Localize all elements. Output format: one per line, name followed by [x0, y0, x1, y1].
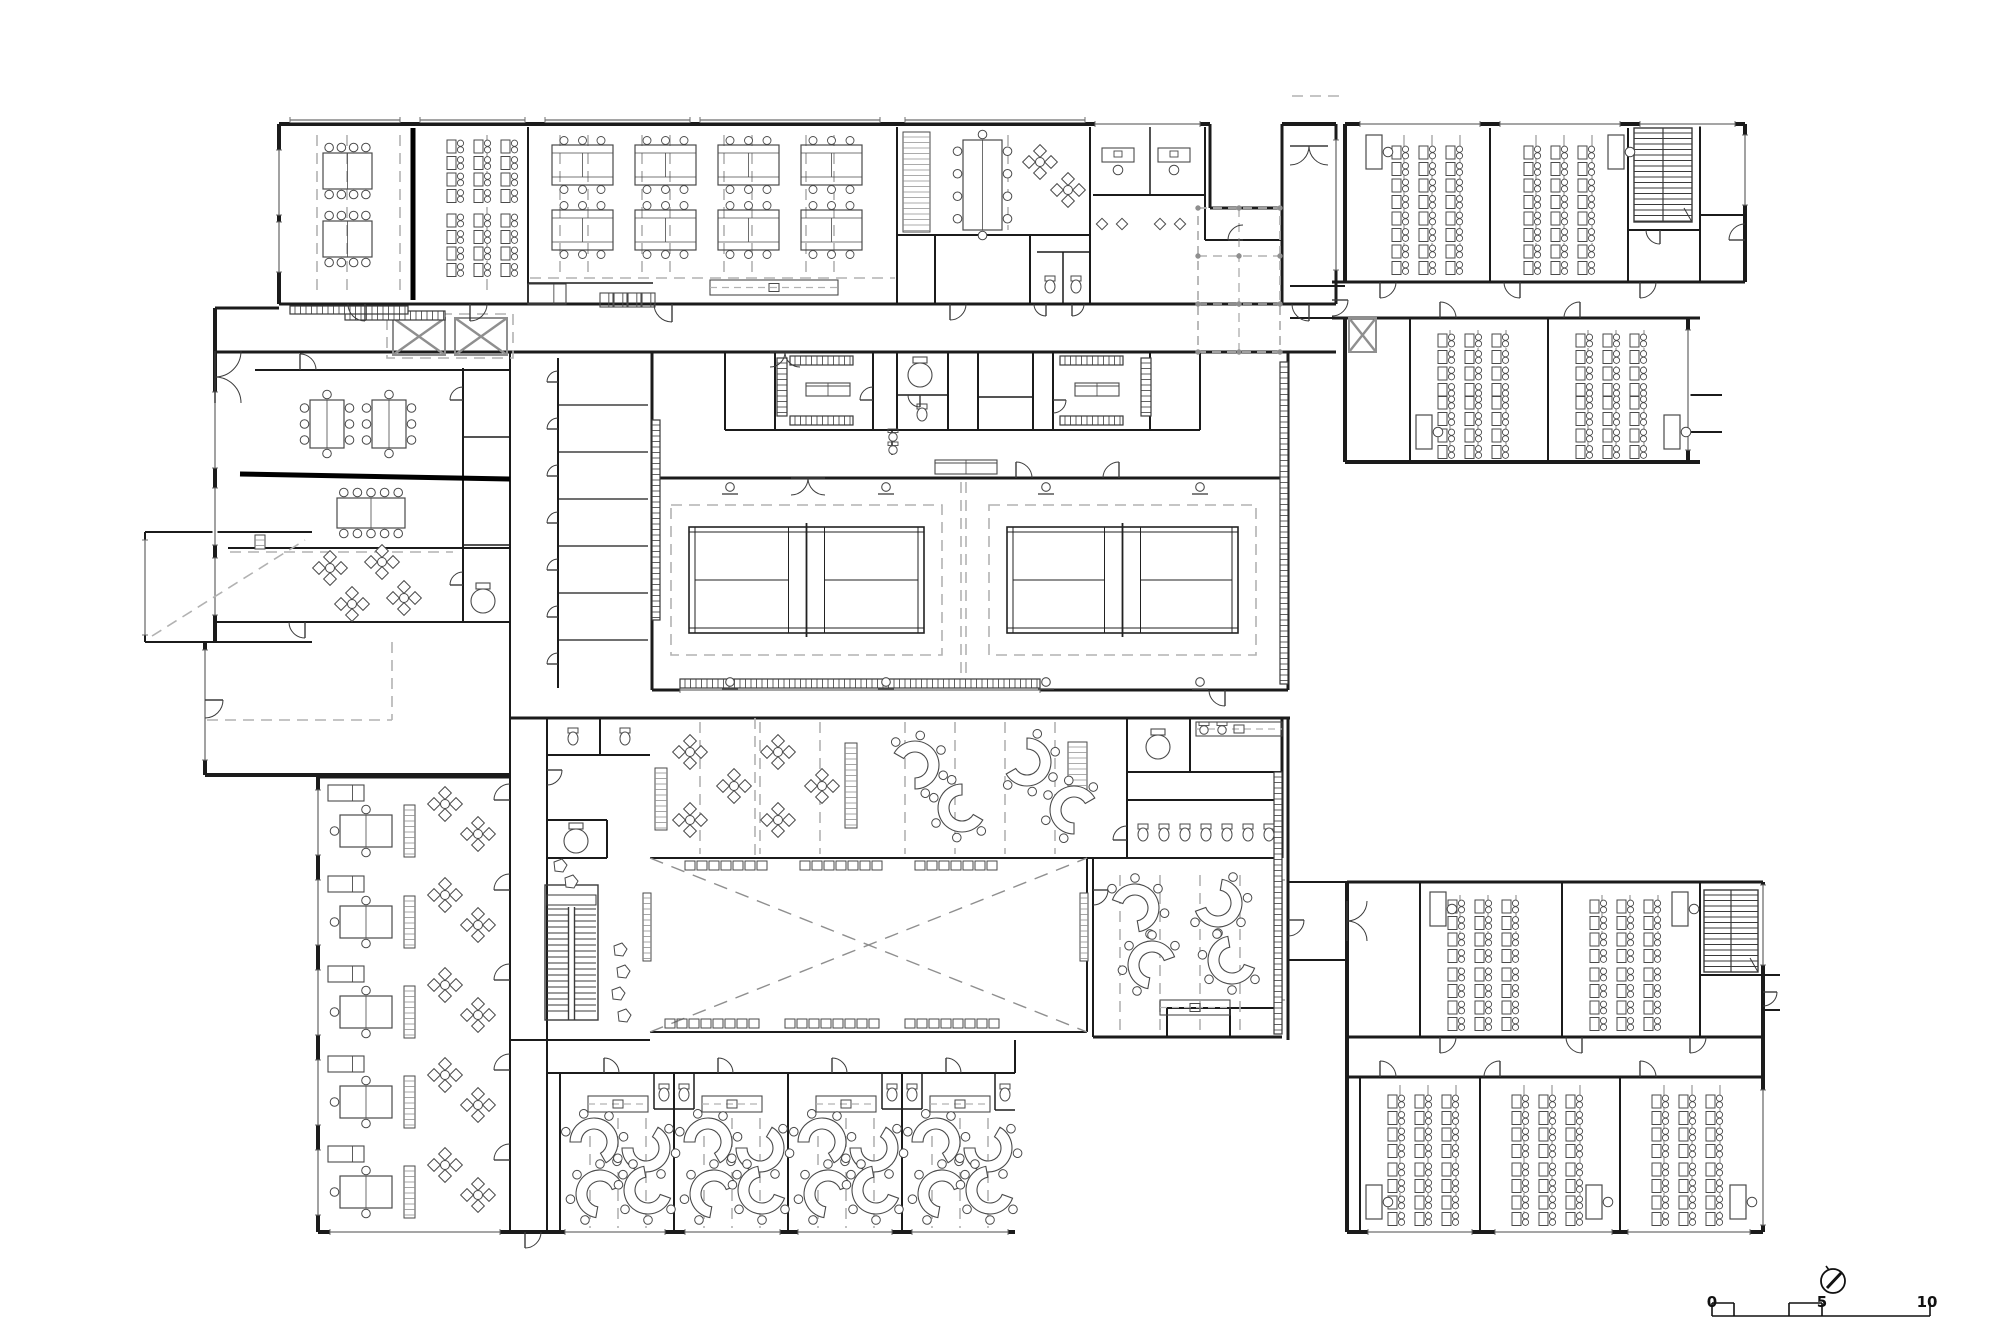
doors-3	[950, 304, 966, 320]
elevator-shafts-0	[393, 318, 445, 355]
elevator-shafts-2	[1349, 318, 1376, 352]
windows-14	[1368, 1229, 1472, 1235]
net-posts-2	[1038, 483, 1054, 494]
classroom-desk-grids-8	[1576, 334, 1647, 397]
four-seat-tables-3	[365, 545, 400, 580]
meeting-tables-9	[330, 1076, 392, 1128]
office-desks-0	[1102, 148, 1134, 175]
toilets-0	[1045, 276, 1055, 293]
meeting-tables-10	[330, 1166, 392, 1218]
four-seat-tables-8	[673, 803, 708, 838]
windows-21	[212, 558, 218, 615]
floor-plan-canvas	[0, 0, 2000, 1338]
teacher-desks-1	[1608, 135, 1635, 169]
classroom-desk-grids-3	[1392, 212, 1463, 275]
architectural-floor-plan: 0 5 10	[0, 0, 2000, 1338]
meeting-tables-5	[953, 130, 1012, 240]
cabinets-3	[328, 1056, 364, 1072]
doors-11	[494, 1144, 510, 1160]
scalebar-label-10: 10	[1917, 1293, 1938, 1311]
doors-18	[1103, 462, 1119, 478]
locker-strips-8	[1141, 358, 1151, 416]
toilets-10	[1243, 824, 1253, 841]
doors-48	[547, 371, 558, 382]
teacher-desks-4	[1430, 892, 1457, 926]
four-seat-tables-2	[313, 551, 348, 586]
toilets-7	[1180, 824, 1190, 841]
guest-chairs-0	[1096, 218, 1107, 229]
windows-2	[545, 117, 690, 123]
windows-13	[330, 1229, 500, 1235]
counters-3	[816, 1096, 876, 1112]
stepping-stones	[554, 859, 631, 1022]
doors-4	[1228, 225, 1243, 240]
teacher-desks-8	[1730, 1185, 1757, 1219]
classroom-desk-grids-16	[1512, 1095, 1583, 1158]
meeting-tables-8	[330, 986, 392, 1038]
toilets-11	[1264, 824, 1274, 841]
doors-31	[1564, 302, 1580, 318]
doors-13	[604, 1058, 619, 1073]
windows-12	[912, 1229, 1008, 1235]
four-seat-tables-13	[461, 817, 496, 852]
scissor-stair-0	[545, 885, 598, 1020]
counters	[588, 280, 1282, 1112]
doors-54	[547, 653, 558, 664]
windows-1	[420, 117, 525, 123]
toilets-13	[679, 1084, 689, 1101]
doors-7	[494, 784, 510, 800]
windows	[142, 117, 1766, 1235]
accessible-toilets-0	[908, 357, 932, 387]
benches-2	[935, 460, 997, 474]
scalebar-label-0: 0	[1707, 1293, 1717, 1311]
windows-11	[798, 1229, 892, 1235]
classroom-desk-grids-14	[1388, 1095, 1459, 1158]
double-doors-1	[1290, 146, 1328, 165]
doors-17	[1016, 462, 1032, 478]
four-seat-tables-6	[673, 735, 708, 770]
doors-50	[547, 465, 558, 476]
lab-benches-2	[718, 137, 779, 194]
locker-strips-1	[1280, 362, 1288, 684]
sports-courts-1	[1007, 523, 1238, 637]
accessible-toilets-3	[471, 583, 495, 613]
walls-horizontal	[145, 124, 1780, 1232]
doors-52	[547, 559, 558, 570]
curved-desk-clusters-23	[942, 1156, 1021, 1238]
curved-desk-clusters-19	[828, 1156, 907, 1238]
teacher-desks-7	[1586, 1185, 1613, 1219]
four-seat-tables-5	[387, 581, 422, 616]
guest-chairs-2	[1154, 218, 1165, 229]
lab-benches-5	[635, 202, 696, 259]
doors-45	[205, 700, 223, 718]
windows-20	[212, 488, 218, 545]
doors-42	[289, 622, 305, 638]
sinks-3	[1217, 722, 1227, 734]
guest-chairs-3	[1174, 218, 1185, 229]
four-seat-tables-11	[761, 803, 796, 838]
stepping-stones-0	[614, 943, 627, 956]
classroom-desk-grids-4	[1524, 146, 1595, 209]
four-seat-tables-10	[805, 769, 840, 804]
windows-23	[142, 540, 148, 635]
seat-rows-4	[785, 1019, 879, 1028]
stepping-stones-2	[612, 987, 625, 1000]
heavy-walls-1	[240, 474, 510, 479]
benches	[806, 383, 1119, 474]
doors-49	[547, 418, 558, 429]
four-seat-tables-14	[428, 878, 463, 913]
windows-16	[1628, 1229, 1750, 1235]
windows-30	[1742, 135, 1748, 205]
doors-21	[1113, 826, 1127, 840]
toilets-15	[907, 1084, 917, 1101]
doors-29	[1640, 282, 1656, 298]
teacher-desks-5	[1672, 892, 1699, 926]
four-seat-tables-0	[1023, 145, 1058, 180]
seat-rows-5	[905, 1019, 999, 1028]
doors-22	[860, 387, 873, 400]
curved-desk-clusters-11	[600, 1156, 679, 1238]
lab-benches-7	[801, 202, 862, 259]
doors-37	[1380, 1061, 1396, 1077]
windows-33	[1760, 1090, 1766, 1225]
four-seat-tables-18	[428, 1058, 463, 1093]
classroom-desk-grids-5	[1524, 212, 1595, 275]
four-seat-tables-20	[428, 1148, 463, 1183]
meeting-tables-2	[300, 390, 354, 458]
windows-26	[315, 970, 321, 1035]
cabinets-2	[328, 966, 364, 982]
double-doors-3	[1347, 901, 1367, 941]
classroom-desk-grids-1	[447, 214, 518, 277]
classroom-desk-grids-6	[1438, 334, 1509, 397]
doors-20	[1093, 890, 1108, 905]
classroom-desk-grids-0	[447, 140, 518, 203]
four-seat-tables-9	[761, 735, 796, 770]
teacher-desks	[1366, 135, 1757, 1219]
net-posts-7	[1192, 678, 1208, 689]
elevator-shafts-1	[455, 318, 507, 355]
shelving-0	[903, 132, 930, 232]
four-seat-tables-7	[717, 769, 752, 804]
windows-28	[315, 1150, 321, 1215]
doors-15	[832, 1058, 847, 1073]
stepping-stones-4	[554, 859, 567, 872]
windows-32	[1760, 885, 1766, 965]
locker-strips-2	[652, 420, 660, 620]
net-posts-1	[878, 483, 894, 494]
windows-8	[1640, 121, 1735, 127]
toilets-16	[1000, 1084, 1010, 1101]
curved-desk-clusters-7	[1184, 926, 1263, 1008]
doors-46	[1288, 920, 1304, 936]
net-posts-3	[1192, 483, 1208, 494]
seat-rows-2	[915, 861, 997, 870]
shelving-5	[404, 1166, 415, 1218]
accessible-toilets-2	[1146, 729, 1170, 759]
windows-15	[1495, 1229, 1612, 1235]
lab-benches-3	[801, 137, 862, 194]
four-seat-tables-17	[461, 998, 496, 1033]
doors-9	[494, 964, 510, 980]
cabinets-0	[328, 785, 364, 801]
classroom-desk-grids-12	[1590, 900, 1661, 963]
doors-30	[1440, 302, 1456, 318]
classroom-desk-grids-13	[1590, 968, 1661, 1031]
lab-benches-4	[552, 202, 613, 259]
windows-6	[1360, 121, 1480, 127]
classroom-desk-grids-19	[1652, 1163, 1723, 1226]
doors-38	[1484, 1061, 1500, 1077]
meeting-tables	[300, 130, 1012, 1218]
counters-1	[588, 1096, 648, 1112]
windows-25	[315, 880, 321, 945]
meeting-tables-1	[323, 211, 372, 267]
windows-3	[700, 117, 880, 123]
doors-51	[547, 512, 558, 523]
doors-36	[1690, 1037, 1706, 1053]
lab-benches	[552, 137, 862, 259]
guest-chairs	[1096, 218, 1185, 229]
windows-27	[315, 1060, 321, 1125]
staircases-0	[1634, 128, 1692, 222]
void-hall-x-mark	[650, 858, 1087, 1032]
windows-19	[212, 392, 218, 468]
four-seat-tables-4	[335, 587, 370, 622]
sinks-2	[1199, 722, 1209, 734]
seat-rows-0	[685, 861, 767, 870]
counters-2	[702, 1096, 762, 1112]
locker-strips-0	[1274, 772, 1282, 1034]
scissor-stair	[545, 885, 598, 1020]
toilets-5	[1138, 824, 1148, 841]
entrance-canopy-grid-0	[1196, 206, 1282, 354]
doors-32	[1729, 224, 1745, 240]
counters-4	[930, 1096, 990, 1112]
seat-rows-1	[800, 861, 882, 870]
teacher-desks-2	[1416, 415, 1443, 449]
double-doors-0	[215, 351, 241, 403]
double-doors-2	[791, 478, 825, 495]
sports-courts-0	[689, 523, 924, 637]
locker-strips-6	[1060, 356, 1123, 365]
classroom-desk-grids-18	[1652, 1095, 1723, 1158]
doors	[205, 224, 1777, 1248]
cabinets-1	[328, 876, 364, 892]
shelving-6	[655, 768, 667, 830]
meeting-tables-4	[337, 488, 405, 538]
shelving-7	[845, 743, 857, 828]
windows-29	[1333, 140, 1339, 270]
windows-7	[1500, 121, 1620, 127]
staircases-1	[1704, 890, 1758, 972]
toilets-6	[1159, 824, 1169, 841]
locker-strips-5	[790, 416, 853, 425]
curved-desk-clusters-15	[714, 1156, 793, 1238]
doors-34	[1440, 1037, 1456, 1053]
doors-19	[1209, 690, 1225, 706]
four-seat-tables-19	[461, 1088, 496, 1123]
north-arrow-icon	[1821, 1266, 1845, 1293]
seat-rows	[665, 861, 999, 1028]
four-seat-tables-21	[461, 1178, 496, 1213]
toilets-3	[620, 728, 630, 745]
cabinets-4	[328, 1146, 364, 1162]
shelving-2	[404, 896, 415, 948]
staircases	[1634, 128, 1758, 972]
toilets-8	[1201, 824, 1211, 841]
windows-22	[202, 650, 208, 760]
teacher-desks-6	[1366, 1185, 1393, 1219]
doors-27	[1380, 282, 1396, 298]
doors-23	[1053, 400, 1066, 413]
classroom-desk-grids-15	[1388, 1163, 1459, 1226]
doors-39	[1640, 1061, 1656, 1077]
shelving	[255, 132, 1088, 1218]
windows-4	[905, 117, 1085, 123]
lab-benches-0	[552, 137, 613, 194]
doors-47	[1332, 300, 1348, 316]
windows-18	[276, 222, 282, 272]
doors-53	[547, 606, 558, 617]
doors-40	[1763, 992, 1777, 1006]
sinks-1	[888, 442, 898, 454]
elevator-shafts	[393, 318, 1376, 355]
stepping-stones-1	[617, 965, 630, 978]
classroom-desk-grids-17	[1512, 1163, 1583, 1226]
entrance-canopy-grid	[1196, 206, 1282, 354]
doors-24	[908, 395, 920, 407]
cabinets	[328, 284, 655, 1162]
classroom-desk-grids-7	[1438, 396, 1509, 459]
doors-25	[1034, 304, 1046, 316]
scalebar-label-5: 5	[1817, 1293, 1827, 1311]
windows-17	[276, 150, 282, 215]
doors-16	[946, 1058, 961, 1073]
lab-benches-6	[718, 202, 779, 259]
toilets-9	[1222, 824, 1232, 841]
accessible-toilets-1	[564, 823, 588, 853]
classroom-desk-grids-11	[1448, 968, 1519, 1031]
windows-9	[565, 1229, 665, 1235]
doors-26	[1072, 304, 1084, 316]
windows-0	[290, 117, 400, 123]
doors-8	[494, 874, 510, 890]
locker-strips-4	[790, 356, 853, 365]
locker-strips-7	[1060, 416, 1123, 425]
office-desks	[1102, 148, 1190, 175]
classroom-desk-grids-2	[1392, 146, 1463, 209]
shelving-10	[1080, 893, 1088, 961]
counters-0	[710, 280, 838, 295]
shelving-1	[404, 805, 415, 857]
benches-0	[806, 383, 850, 396]
meeting-tables-6	[330, 805, 392, 857]
four-seat-tables-15	[461, 908, 496, 943]
doors-2	[654, 304, 672, 322]
doors-14	[718, 1058, 733, 1073]
net-posts	[722, 483, 1208, 689]
windows-24	[315, 790, 321, 855]
classroom-desk-grids-10	[1448, 900, 1519, 963]
meeting-tables-3	[362, 390, 416, 458]
meeting-tables-7	[330, 896, 392, 948]
doors-33	[1646, 230, 1660, 244]
windows-5	[1095, 121, 1200, 127]
guest-chairs-1	[1116, 218, 1127, 229]
classroom-desk-grids-9	[1576, 396, 1647, 459]
four-seat-tables-12	[428, 787, 463, 822]
office-desks-1	[1158, 148, 1190, 175]
shelving-11	[255, 535, 265, 549]
four-seat-tables-16	[428, 968, 463, 1003]
sports-courts	[689, 523, 1238, 637]
locker-strips-3	[777, 358, 787, 416]
benches-1	[1075, 383, 1119, 396]
shelving-3	[404, 986, 415, 1038]
windows-10	[685, 1229, 780, 1235]
teacher-desks-0	[1366, 135, 1393, 169]
doors-6	[547, 770, 562, 785]
doors-41	[300, 354, 316, 370]
void-hall-x-mark-0	[650, 858, 1087, 1032]
doors-44	[450, 572, 463, 585]
stepping-stones-3	[618, 1009, 631, 1022]
doors-12	[525, 1232, 541, 1248]
curved-desk-clusters-4	[1104, 860, 1183, 942]
shelving-4	[404, 1076, 415, 1128]
doors-10	[494, 1054, 510, 1070]
stepping-stones-5	[565, 875, 578, 888]
doors-43	[450, 387, 463, 400]
doors-35	[1566, 1037, 1582, 1053]
toilets-2	[568, 728, 578, 745]
toilets-12	[659, 1084, 669, 1101]
toilets-1	[1071, 276, 1081, 293]
toilets-14	[887, 1084, 897, 1101]
lab-benches-1	[635, 137, 696, 194]
shelving-9	[643, 893, 651, 961]
four-seat-tables-1	[1051, 173, 1086, 208]
net-posts-0	[722, 483, 738, 494]
cabinets-5	[528, 284, 566, 304]
doors-28	[1504, 282, 1520, 298]
